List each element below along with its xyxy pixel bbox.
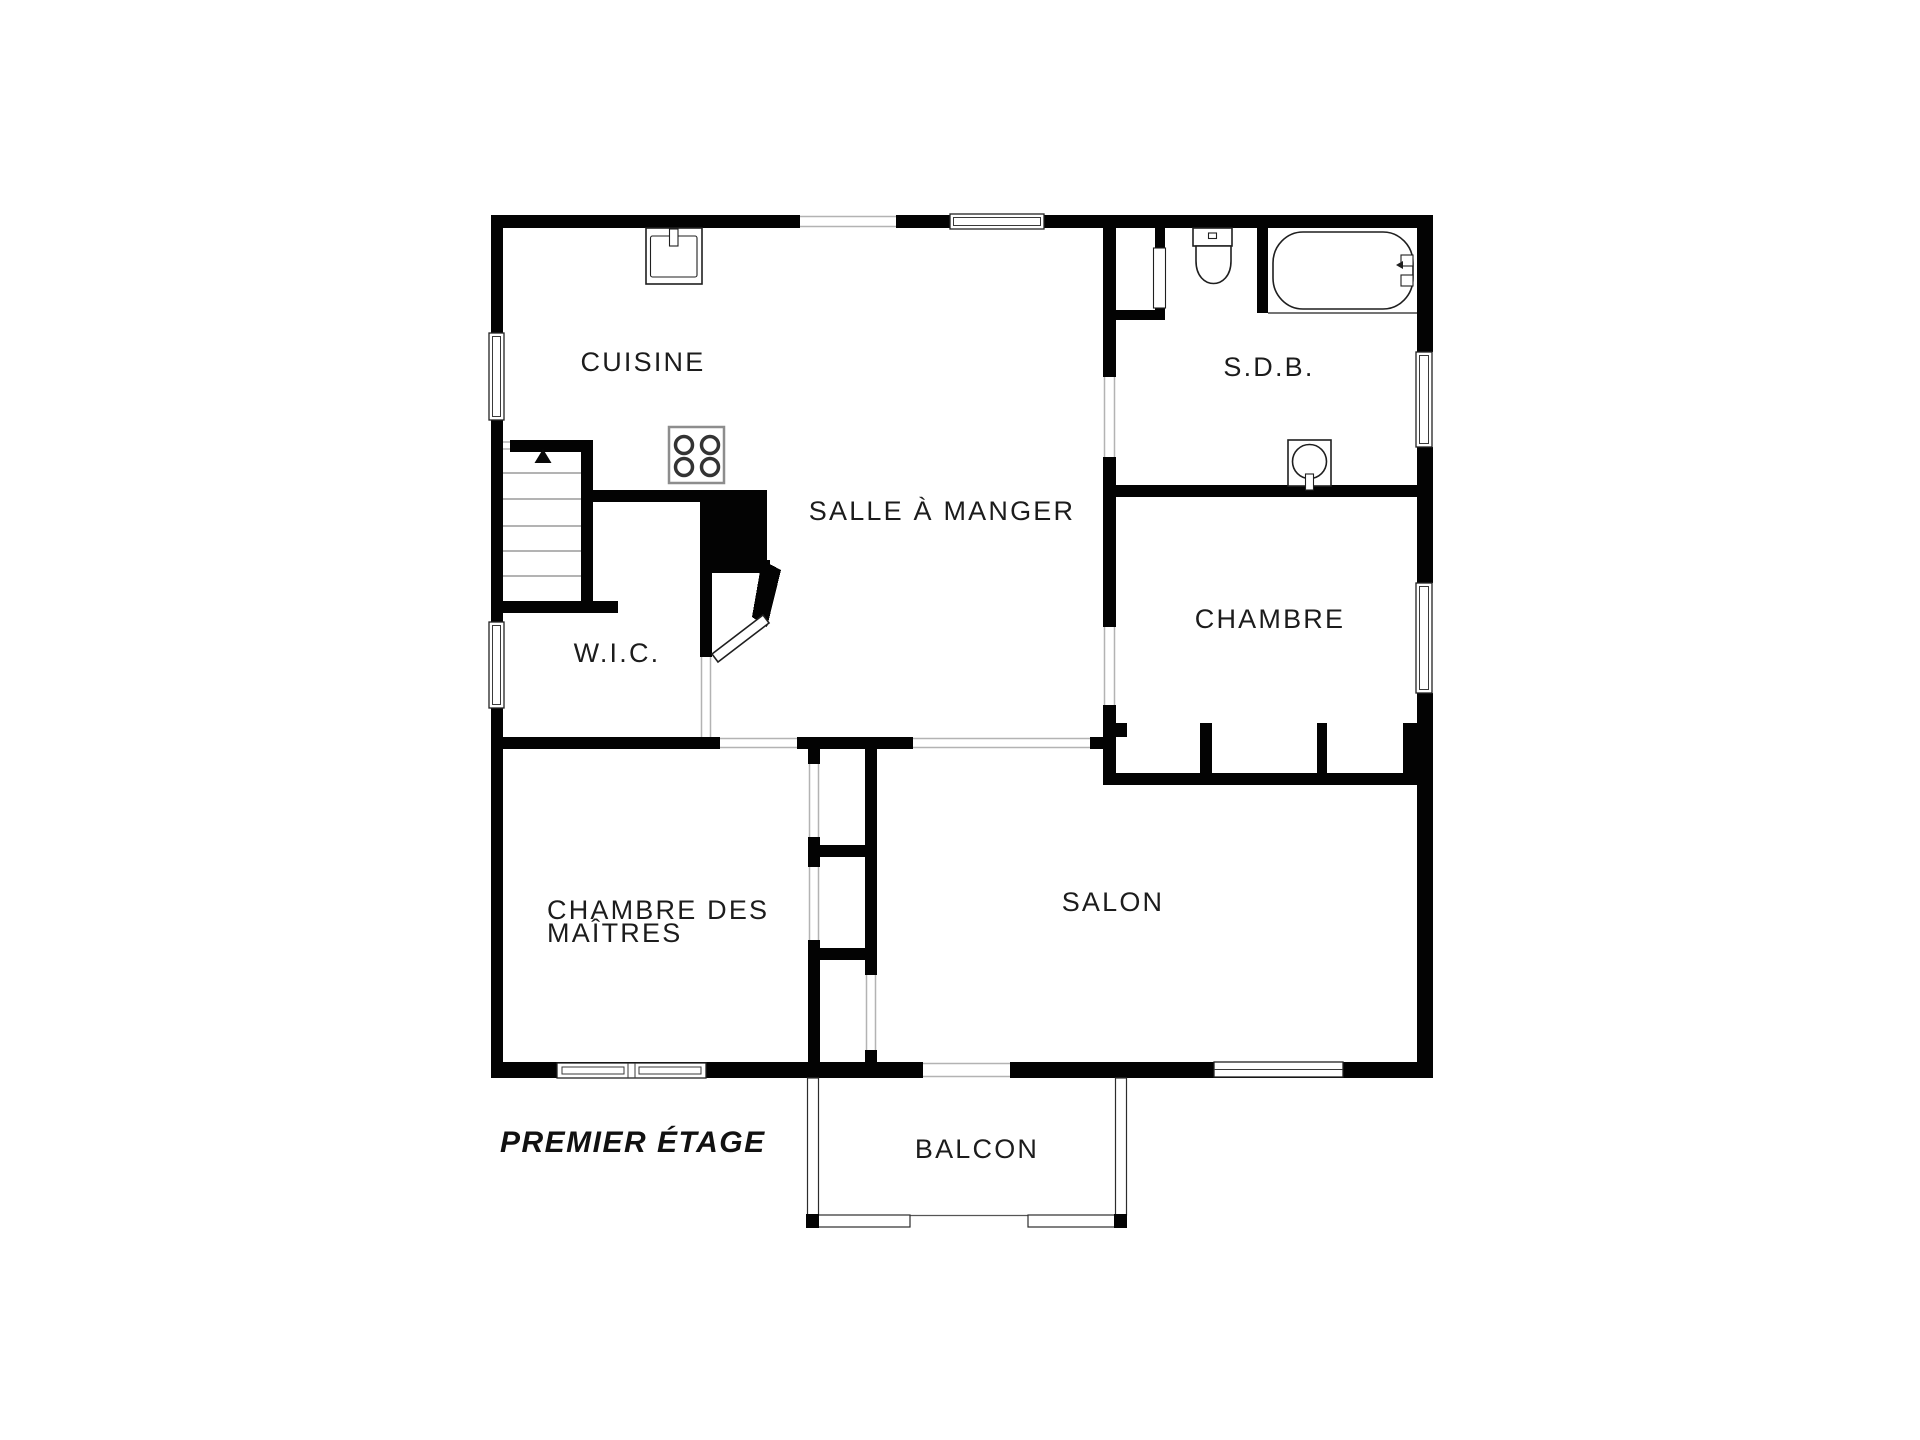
toilet xyxy=(1193,228,1232,284)
room-label-salon: SALON xyxy=(1062,887,1165,917)
floor-title: PREMIER ÉTAGE xyxy=(500,1125,766,1159)
bathtub xyxy=(1268,232,1417,313)
closet-door-leaf xyxy=(1154,248,1166,308)
window-right-sdb xyxy=(1416,352,1432,447)
room-labels: CUISINE SALLE À MANGER S.D.B. CHAMBRE W.… xyxy=(500,347,1345,1164)
room-label-salle-a-manger: SALLE À MANGER xyxy=(809,496,1075,526)
dining-door-leaf xyxy=(712,615,769,662)
window-bottom-salon xyxy=(1214,1062,1343,1077)
window-left-wic xyxy=(489,622,504,708)
floor-plan: CUISINE SALLE À MANGER S.D.B. CHAMBRE W.… xyxy=(0,0,1920,1440)
vanity-sink xyxy=(1288,440,1331,490)
room-label-balcon: BALCON xyxy=(915,1134,1039,1164)
window-bottom-master xyxy=(557,1063,706,1078)
room-label-wic: W.I.C. xyxy=(574,638,661,668)
window-left-kitchen xyxy=(489,333,504,420)
door-leaves xyxy=(712,248,1166,662)
kitchen-sink xyxy=(646,228,702,284)
floor-plan-page: CUISINE SALLE À MANGER S.D.B. CHAMBRE W.… xyxy=(0,0,1920,1440)
window-top-dining xyxy=(950,214,1044,229)
room-label-chambre: CHAMBRE xyxy=(1195,604,1345,634)
window-right-chambre xyxy=(1416,583,1432,693)
room-label-sdb: S.D.B. xyxy=(1223,352,1314,382)
room-label-cuisine: CUISINE xyxy=(581,347,706,377)
stove xyxy=(669,427,724,483)
room-label-master-line2: MAÎTRES xyxy=(547,917,682,948)
stairs xyxy=(503,449,581,576)
